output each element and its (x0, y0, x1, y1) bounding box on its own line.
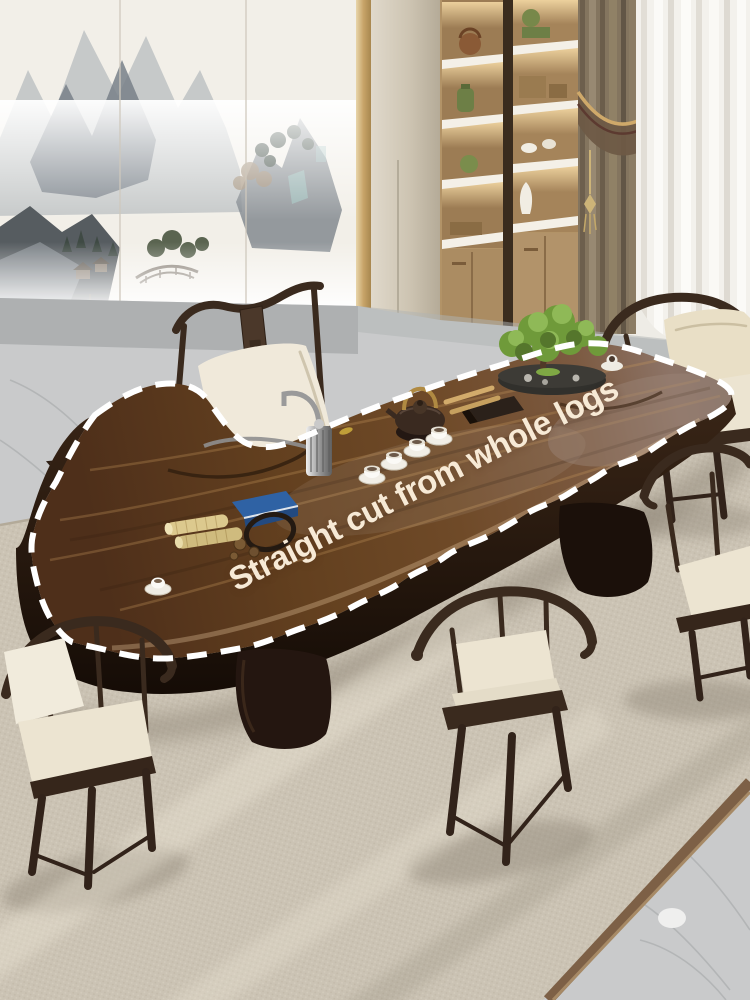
room-scene (0, 0, 750, 1000)
white-cup (521, 143, 537, 153)
green-jar (457, 88, 474, 112)
wall-pillar (371, 0, 441, 320)
gold-trim (356, 0, 371, 314)
table-stump-leg (559, 503, 652, 597)
table-stump-leg (236, 649, 332, 749)
mural-mist-upper (0, 100, 358, 220)
green-box (522, 27, 550, 38)
faucet-knob (314, 419, 324, 429)
wooden-box (450, 222, 482, 235)
cabinet-divider (503, 0, 513, 330)
landscape-mural (0, 0, 358, 310)
rail-curl (411, 649, 423, 661)
tea-table-product-photo: Straight cut from whole logs (0, 0, 750, 1000)
green-sphere (522, 9, 540, 27)
marble-white-spot (658, 908, 686, 928)
mural-mist-lower (0, 242, 358, 308)
display-cabinet (440, 0, 580, 330)
wooden-boxes (519, 76, 546, 98)
clay-teapot (459, 33, 481, 55)
green-sphere (460, 155, 478, 173)
bonsai-moss (536, 368, 560, 376)
